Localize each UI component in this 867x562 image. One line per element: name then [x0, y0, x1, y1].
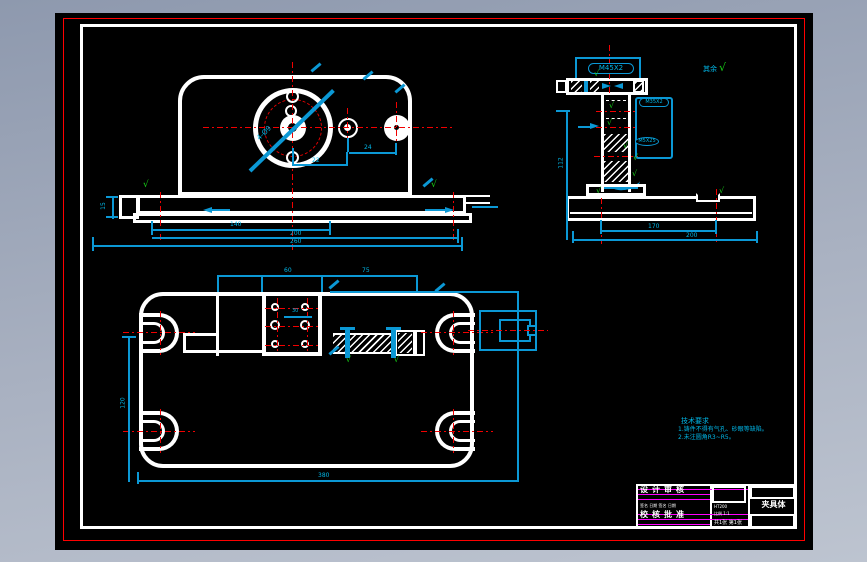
- side-column-centerline-1: [596, 111, 636, 112]
- front-dim2-text: 200: [290, 231, 301, 237]
- plan-left-vdim: [128, 336, 130, 482]
- plan-hole-4: [300, 320, 310, 330]
- plan-left-vdim-tick: [122, 336, 136, 338]
- front-dim-a-text: 24: [364, 145, 372, 151]
- side-flange-cyan-bar: [584, 81, 588, 92]
- front-dim3-ext2: [461, 237, 463, 251]
- side-pin-thread-oval: M5X25: [635, 137, 659, 146]
- front-dim-a-line: [349, 152, 397, 154]
- side-top-bracket-v1: [575, 57, 577, 78]
- plan-hole-centerline-h3: [265, 345, 321, 346]
- title-block-right-top-cell: [750, 486, 795, 499]
- plan-bottom-dim-line: [138, 480, 519, 482]
- plan-slot-centerline-uh-left: [123, 332, 195, 333]
- plan-step-hline1: [183, 333, 218, 336]
- front-dim-b-text: 22: [312, 158, 320, 164]
- side-dim2-line: [573, 239, 758, 241]
- side-left-vdim-line: [566, 110, 568, 240]
- front-dim3-text: 260: [290, 239, 301, 245]
- title-block-material: HT200: [714, 505, 727, 509]
- front-roughness-check-left: √: [143, 181, 149, 190]
- rest-roughness-check: √: [719, 62, 726, 73]
- front-dim3-ext1: [92, 237, 94, 251]
- side-dim1-text: 170: [648, 224, 659, 230]
- front-base-arrow-left: [203, 207, 212, 213]
- side-roughness-col-2: √: [607, 119, 612, 127]
- front-dim2-line: [152, 237, 458, 239]
- rest-roughness-label: 其余: [703, 66, 717, 73]
- plan-dim30-text: 30: [292, 309, 298, 314]
- plan-slot-centerline-lh-right: [421, 431, 493, 432]
- plan-hole-centerline-h2: [265, 326, 321, 327]
- side-column-foot: [586, 184, 646, 196]
- side-left-vdim-tick: [556, 110, 570, 112]
- title-block-part-name: 夹具体: [750, 501, 797, 509]
- front-base-arrow-right-tail: [425, 209, 445, 211]
- title-block-signature-specks: 签名 日期 签名 日期: [640, 504, 676, 508]
- plan-slot-centerline-v1: [160, 311, 161, 355]
- front-dim2-ext: [457, 229, 459, 243]
- front-dim-b-line: [293, 164, 348, 166]
- side-top-bracket-h: [575, 57, 641, 59]
- plan-slot-centerline-lh-left: [123, 431, 195, 432]
- plan-clamp-bar-1: [345, 329, 350, 358]
- title-block-magenta-3: [638, 499, 710, 500]
- plan-top-dim-line: [218, 275, 418, 277]
- title-block-signature-row2: 校核批准: [640, 511, 688, 519]
- side-base-inner-line: [570, 212, 752, 214]
- side-column-centerline-2: [596, 127, 636, 128]
- side-top-bracket-v2: [639, 57, 641, 78]
- side-roughness-oval-leader: √: [623, 142, 628, 150]
- side-dim2-ext2: [756, 231, 758, 243]
- front-slot-centerline-left: [160, 192, 161, 242]
- side-flange-hatch-1: [571, 81, 582, 92]
- front-right-lug-dim: [472, 206, 498, 208]
- front-right-lug-line2: [466, 202, 490, 204]
- side-left-stub: [556, 80, 567, 93]
- front-dim3-line: [93, 245, 462, 247]
- side-mid-arrow-tail: [578, 126, 592, 128]
- plan-clamp-bar-2-head: [386, 327, 401, 330]
- side-dim1-line: [601, 230, 717, 232]
- title-block-right-bottom-cell: [750, 514, 795, 528]
- title-block-signature-row1: 设计审核: [640, 486, 688, 494]
- plan-clamp-bar-1-head: [340, 327, 355, 330]
- front-base-arrow-right: [445, 207, 454, 213]
- front-tab-dim-tick-bottom: [106, 216, 118, 218]
- front-dim1-ext1: [151, 221, 153, 235]
- side-left-vdim-text: 112: [559, 157, 565, 168]
- side-column-centerline-3: [594, 156, 638, 157]
- title-block-magenta-6: [638, 524, 710, 525]
- plan-slot-centerline-v4: [453, 409, 454, 453]
- side-roughness-mid-1: √: [633, 154, 638, 162]
- front-dim1-line: [152, 229, 330, 231]
- front-base-upper: [137, 195, 466, 214]
- front-base-lower: [133, 213, 472, 223]
- plan-roughness-2: √: [394, 356, 399, 364]
- side-flange-hatch-3: [633, 80, 644, 93]
- plan-rib-hatch-band: [333, 333, 395, 354]
- front-right-lug-line1: [466, 195, 490, 197]
- plan-clamp-bar-2: [391, 329, 396, 358]
- side-base-centerline-2: [716, 189, 717, 244]
- side-roughness-base-left: √: [596, 187, 601, 195]
- tech-req-line1: 1.铸件不得有气孔、砂眼等缺陷。: [678, 427, 768, 433]
- side-base-outline: [566, 196, 756, 221]
- front-dim1-text: 140: [230, 222, 241, 228]
- plan-keyway-centerline: [468, 330, 548, 331]
- plan-top-dim-ext2: [261, 275, 263, 292]
- side-roughness-mid-2: √: [632, 170, 637, 178]
- plan-bottom-dim-ext: [137, 472, 139, 484]
- title-block-scale: 比例 1:1: [714, 512, 730, 516]
- plan-slot-ul-inner: [139, 322, 165, 344]
- plan-left-vdim-text: 120: [121, 397, 127, 408]
- plan-rib-end-block: [415, 330, 425, 356]
- front-horizontal-centerline: [203, 127, 455, 128]
- cad-viewport: 15 4-Ø9 √ √ 24 22 140 200 260: [0, 0, 867, 562]
- title-block-magenta-2: [638, 494, 710, 495]
- side-roughness-col-1: √: [609, 102, 614, 110]
- plan-bottom-dim-text: 380: [318, 473, 329, 479]
- tech-req-title: 技术要求: [681, 418, 709, 425]
- plan-top-dim-ext3: [321, 275, 323, 292]
- side-dim2-ext1: [572, 231, 574, 243]
- plan-hole-3: [270, 320, 280, 330]
- title-block-mid-cell: [712, 486, 746, 503]
- tech-req-line2: 2.未注圆角R3~R5。: [678, 435, 735, 441]
- plan-slot-centerline-v2: [453, 311, 454, 355]
- front-base-arrow-left-tail: [212, 209, 230, 211]
- side-flange-hatch-2: [590, 81, 599, 92]
- plan-hole-centerline-v2: [307, 298, 308, 352]
- front-slot-centerline-right: [453, 192, 454, 242]
- plan-rib-block-hatch: [398, 333, 412, 353]
- title-block-sheet-count: 共1张 第1张: [714, 521, 742, 526]
- front-tab-dim-text: 15: [101, 202, 107, 210]
- side-dim2-text: 200: [686, 233, 697, 239]
- front-roughness-check-right: √: [431, 181, 437, 190]
- plan-slot-centerline-v3: [160, 409, 161, 453]
- front-tab-dim-tick-top: [106, 196, 118, 198]
- side-roughness-under-balloon: √: [594, 70, 599, 78]
- front-left-tab: [119, 195, 139, 219]
- plan-internal-vline: [216, 294, 219, 356]
- plan-hole-centerline-v1: [277, 298, 278, 352]
- front-dim1-ext2: [329, 221, 331, 235]
- side-boss-thread-balloon: M35X2: [639, 98, 669, 107]
- plan-step-hline2: [183, 350, 263, 353]
- plan-dim30-line: [284, 316, 312, 318]
- plan-top-dim-ext4: [416, 275, 418, 292]
- side-roughness-base-right: √: [719, 187, 724, 195]
- plan-top-dim-text2: 75: [362, 268, 370, 274]
- side-flange-arrow-left: [614, 83, 623, 89]
- plan-top-dim-ext1: [217, 275, 219, 292]
- front-dim-a-ext1: [347, 138, 349, 152]
- plan-top-dim-text1: 60: [284, 268, 292, 274]
- plan-top-long-line: [330, 291, 519, 293]
- plan-roughness-1: √: [346, 356, 351, 364]
